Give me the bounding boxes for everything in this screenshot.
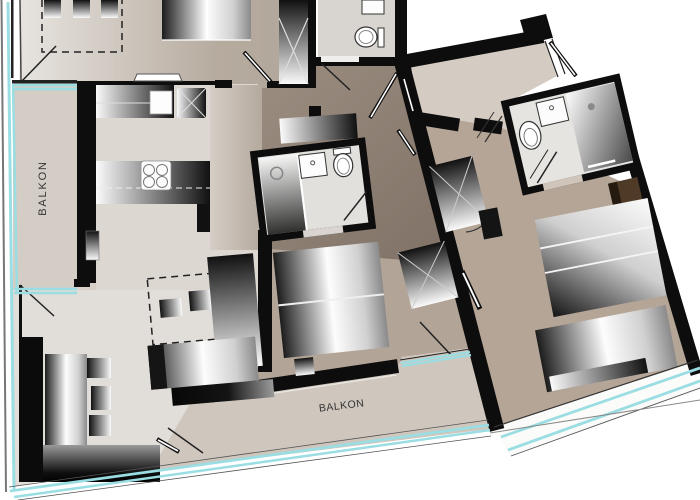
svg-text:BALKON: BALKON	[37, 160, 49, 215]
